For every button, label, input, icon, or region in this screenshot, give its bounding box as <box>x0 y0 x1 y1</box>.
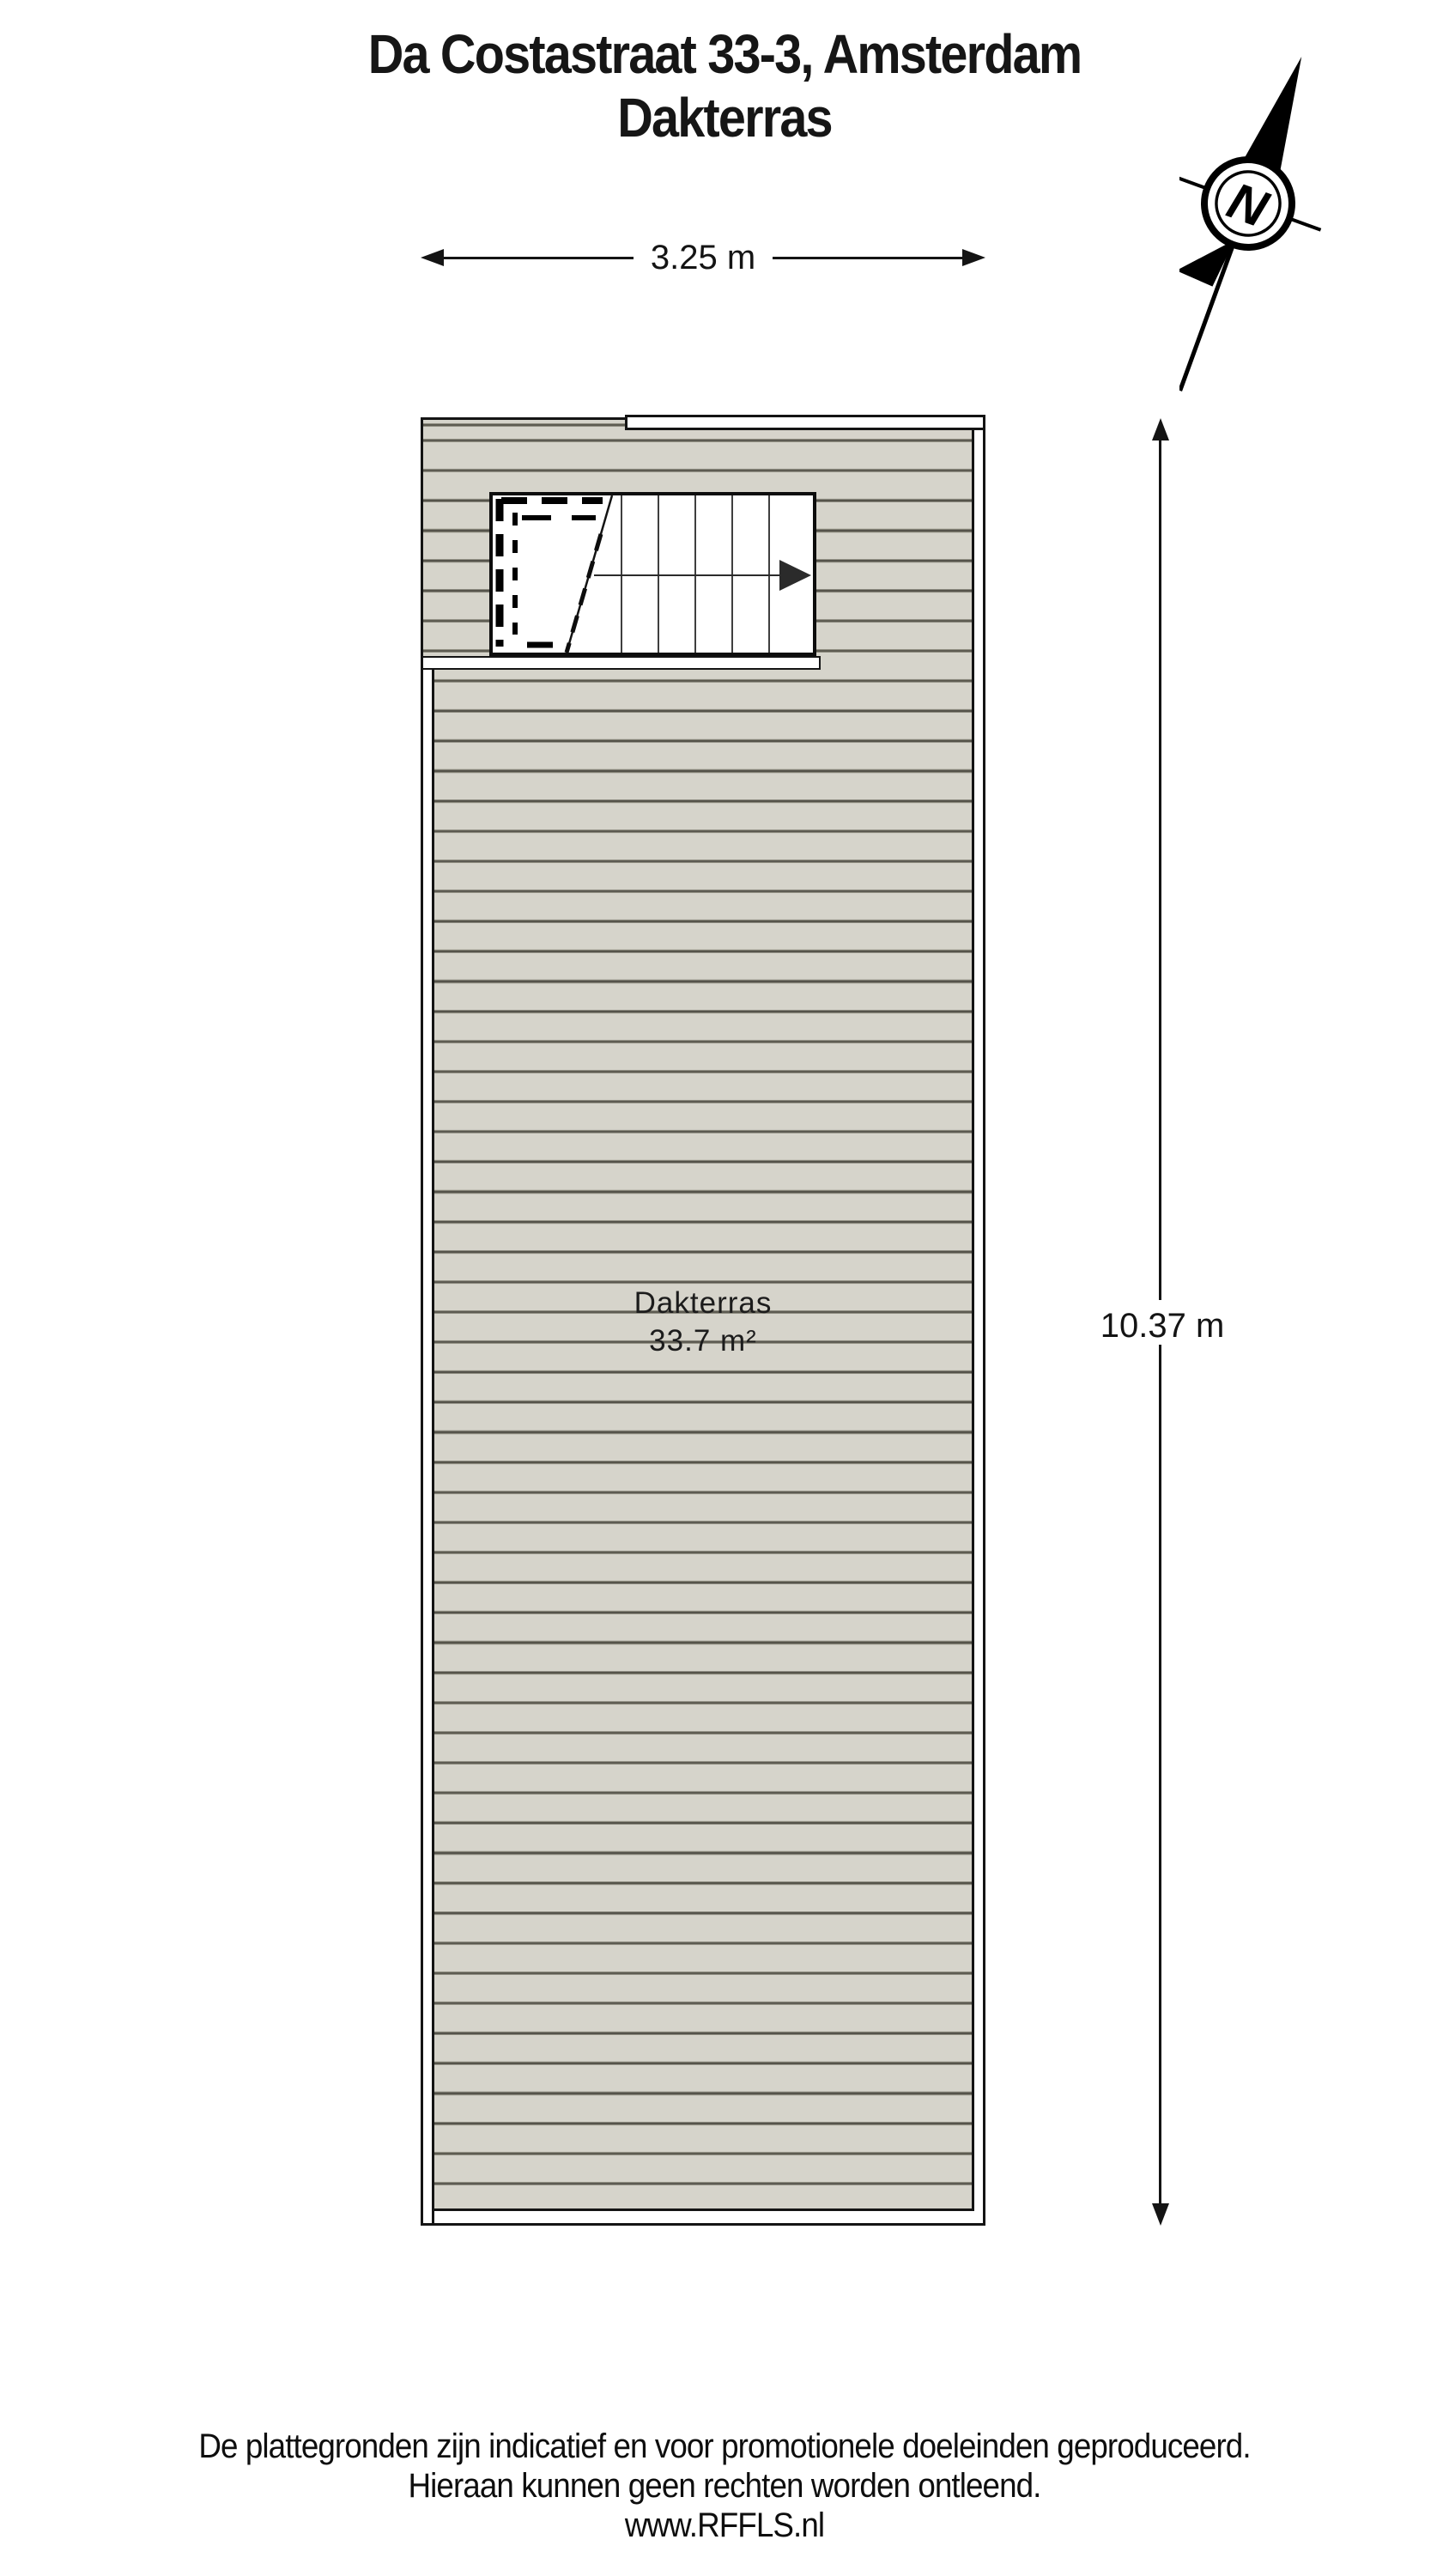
dimension-vertical-label: 10.37 m <box>1059 1307 1265 1346</box>
dimension-line <box>444 257 634 259</box>
room-name: Dakterras <box>421 1285 985 1322</box>
stair-landing-wall <box>423 656 821 670</box>
arrowhead-down-icon <box>1152 2203 1169 2226</box>
footer-website: www.RFFLS.nl <box>58 2506 1391 2545</box>
compass-icon: N <box>1179 36 1325 405</box>
dimension-line <box>773 257 962 259</box>
room-area: 33.7 m² <box>421 1322 985 1360</box>
stairwell <box>489 492 816 656</box>
dimension-horizontal: 3.25 m <box>421 238 985 277</box>
footer-disclaimer: De plattegronden zijn indicatief en voor… <box>58 2427 1391 2545</box>
dimension-line <box>1159 1345 1161 2206</box>
dimension-horizontal-label: 3.25 m <box>634 239 773 277</box>
top-parapet-wall <box>625 415 985 430</box>
stairs-drawing <box>493 495 813 653</box>
floorplan-page: Da Costastraat 33-3, Amsterdam Dakterras… <box>0 0 1449 2576</box>
left-wall-strip <box>423 657 434 2223</box>
footer-line-2: Hieraan kunnen geen rechten worden ontle… <box>58 2466 1391 2506</box>
arrowhead-right-icon <box>962 249 985 266</box>
room-label: Dakterras 33.7 m² <box>421 1285 985 1360</box>
dimension-line <box>1159 437 1161 1300</box>
arrowhead-left-icon <box>421 249 444 266</box>
footer-line-1: De plattegronden zijn indicatief en voor… <box>58 2427 1391 2466</box>
